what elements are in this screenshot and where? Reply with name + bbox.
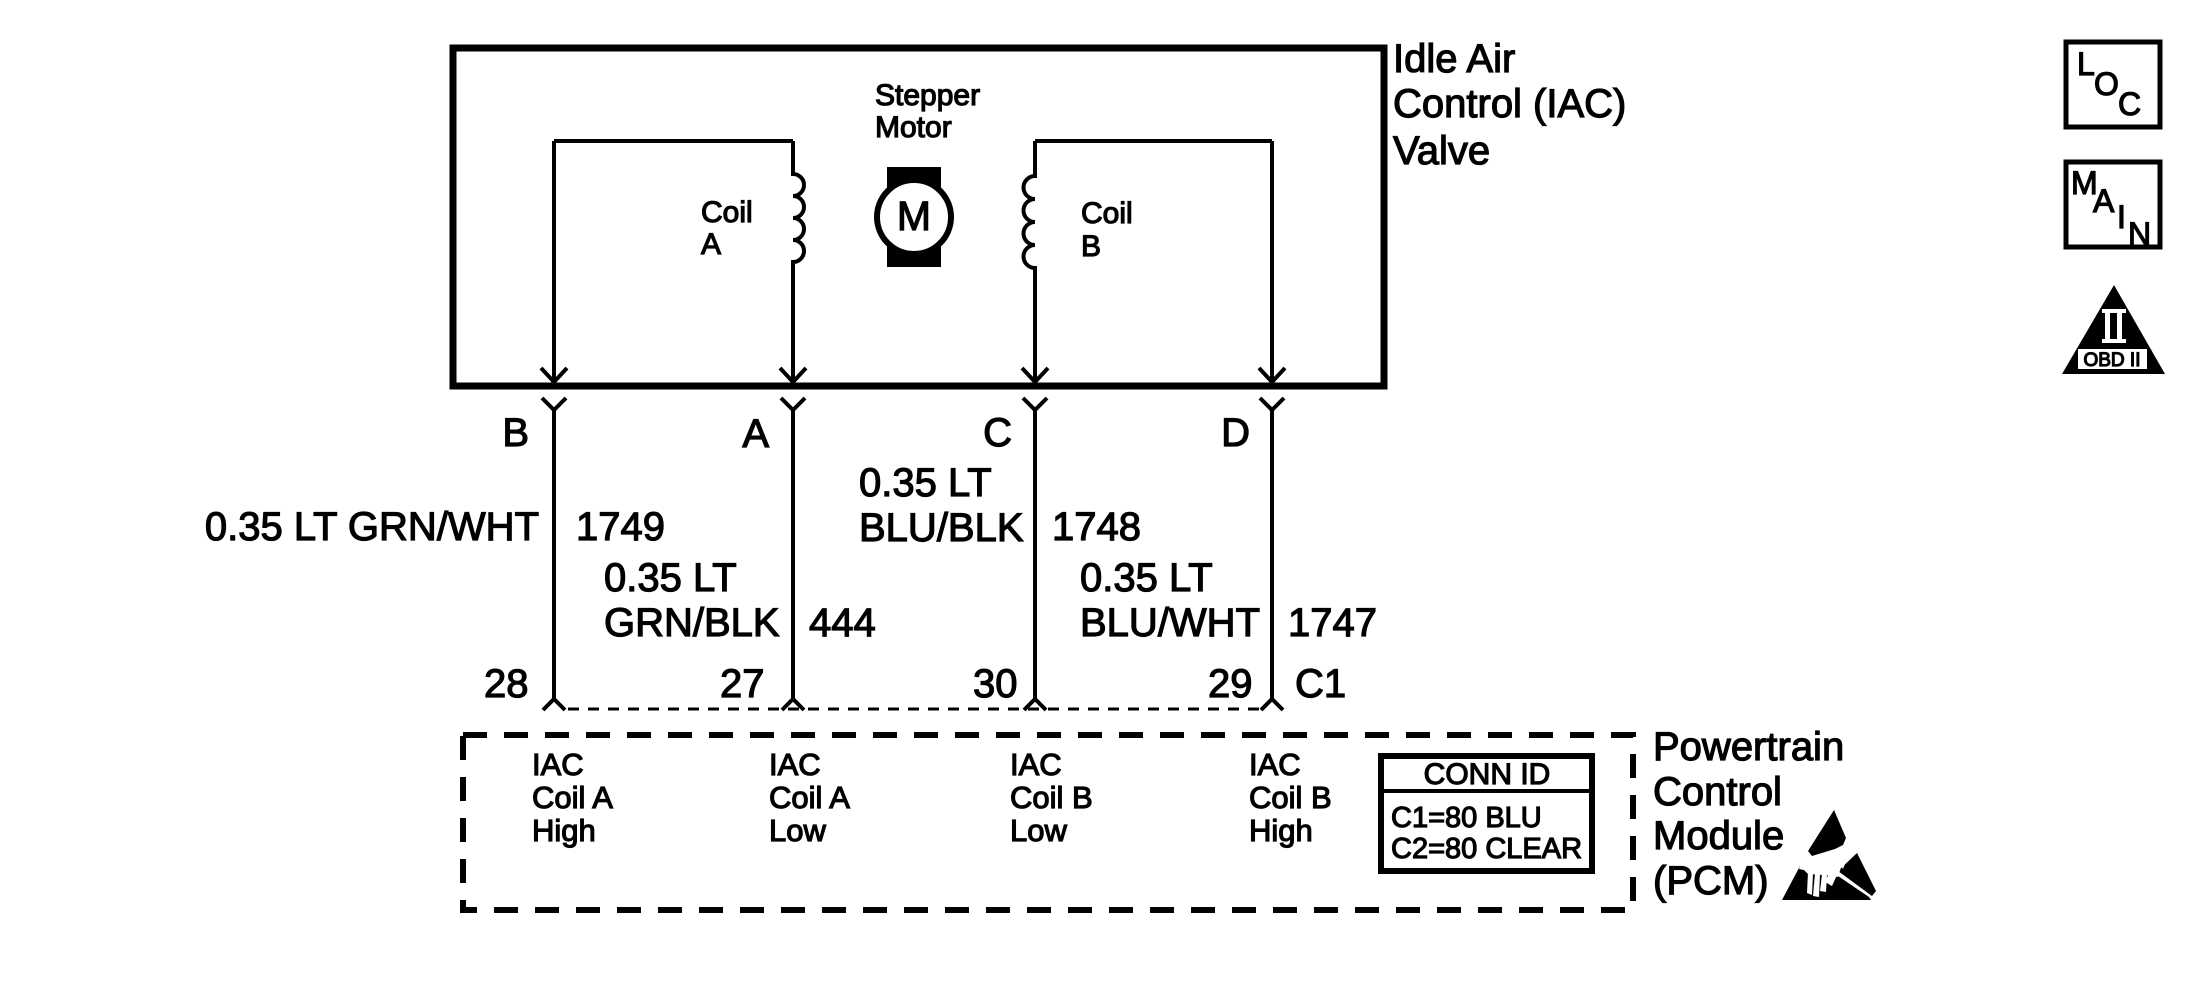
svg-text:B: B	[502, 411, 529, 455]
svg-text:0.35 LT: 0.35 LT	[1080, 556, 1213, 600]
svg-text:Low: Low	[1010, 813, 1067, 848]
svg-text:30: 30	[973, 662, 1018, 706]
svg-text:C: C	[2118, 86, 2141, 122]
svg-text:1749: 1749	[576, 505, 665, 549]
svg-text:BLU/WHT: BLU/WHT	[1080, 601, 1260, 645]
svg-text:Stepper: Stepper	[875, 79, 980, 112]
svg-text:B: B	[1081, 230, 1101, 263]
svg-text:A: A	[2093, 183, 2115, 219]
svg-text:Control (IAC): Control (IAC)	[1393, 82, 1626, 126]
svg-text:M: M	[897, 193, 931, 239]
svg-text:Coil A: Coil A	[532, 780, 613, 815]
svg-text:Low: Low	[769, 813, 826, 848]
svg-text:IAC: IAC	[769, 747, 821, 782]
svg-text:IAC: IAC	[1010, 747, 1062, 782]
svg-text:Module: Module	[1653, 814, 1784, 858]
svg-text:0.35 LT GRN/WHT: 0.35 LT GRN/WHT	[205, 505, 539, 549]
svg-text:Coil B: Coil B	[1249, 780, 1332, 815]
svg-text:27: 27	[720, 662, 765, 706]
svg-text:C1=80 BLU: C1=80 BLU	[1391, 802, 1542, 834]
svg-text:(PCM): (PCM)	[1653, 859, 1769, 903]
svg-text:A: A	[742, 412, 769, 456]
svg-text:Motor: Motor	[875, 111, 952, 144]
svg-text:BLU/BLK: BLU/BLK	[859, 506, 1024, 550]
svg-text:29: 29	[1208, 662, 1253, 706]
svg-text:28: 28	[484, 662, 529, 706]
svg-text:N: N	[2128, 216, 2151, 252]
svg-text:444: 444	[809, 601, 876, 645]
svg-text:A: A	[701, 228, 721, 261]
svg-text:OBD II: OBD II	[2083, 350, 2140, 371]
svg-text:C2=80 CLEAR: C2=80 CLEAR	[1391, 833, 1582, 865]
svg-text:Idle Air: Idle Air	[1393, 37, 1515, 81]
svg-text:C: C	[983, 411, 1012, 455]
svg-text:High: High	[1249, 813, 1313, 848]
svg-text:Coil B: Coil B	[1010, 780, 1093, 815]
svg-text:GRN/BLK: GRN/BLK	[604, 601, 780, 645]
svg-text:1747: 1747	[1288, 601, 1377, 645]
svg-text:Coil A: Coil A	[769, 780, 850, 815]
svg-text:1748: 1748	[1052, 505, 1141, 549]
svg-text:C1: C1	[1295, 662, 1346, 706]
svg-text:CONN ID: CONN ID	[1424, 758, 1551, 791]
svg-text:I: I	[2117, 199, 2126, 235]
svg-text:D: D	[1221, 411, 1250, 455]
svg-text:IAC: IAC	[532, 747, 584, 782]
svg-text:Coil: Coil	[701, 196, 753, 229]
svg-text:L: L	[2077, 46, 2095, 82]
svg-text:0.35 LT: 0.35 LT	[604, 556, 737, 600]
svg-text:Coil: Coil	[1081, 197, 1133, 230]
svg-text:High: High	[532, 813, 596, 848]
svg-text:Control: Control	[1653, 770, 1782, 814]
svg-text:O: O	[2094, 66, 2119, 102]
svg-text:Powertrain: Powertrain	[1653, 725, 1844, 769]
svg-text:Valve: Valve	[1393, 129, 1490, 173]
svg-text:0.35 LT: 0.35 LT	[859, 461, 992, 505]
svg-text:IAC: IAC	[1249, 747, 1301, 782]
